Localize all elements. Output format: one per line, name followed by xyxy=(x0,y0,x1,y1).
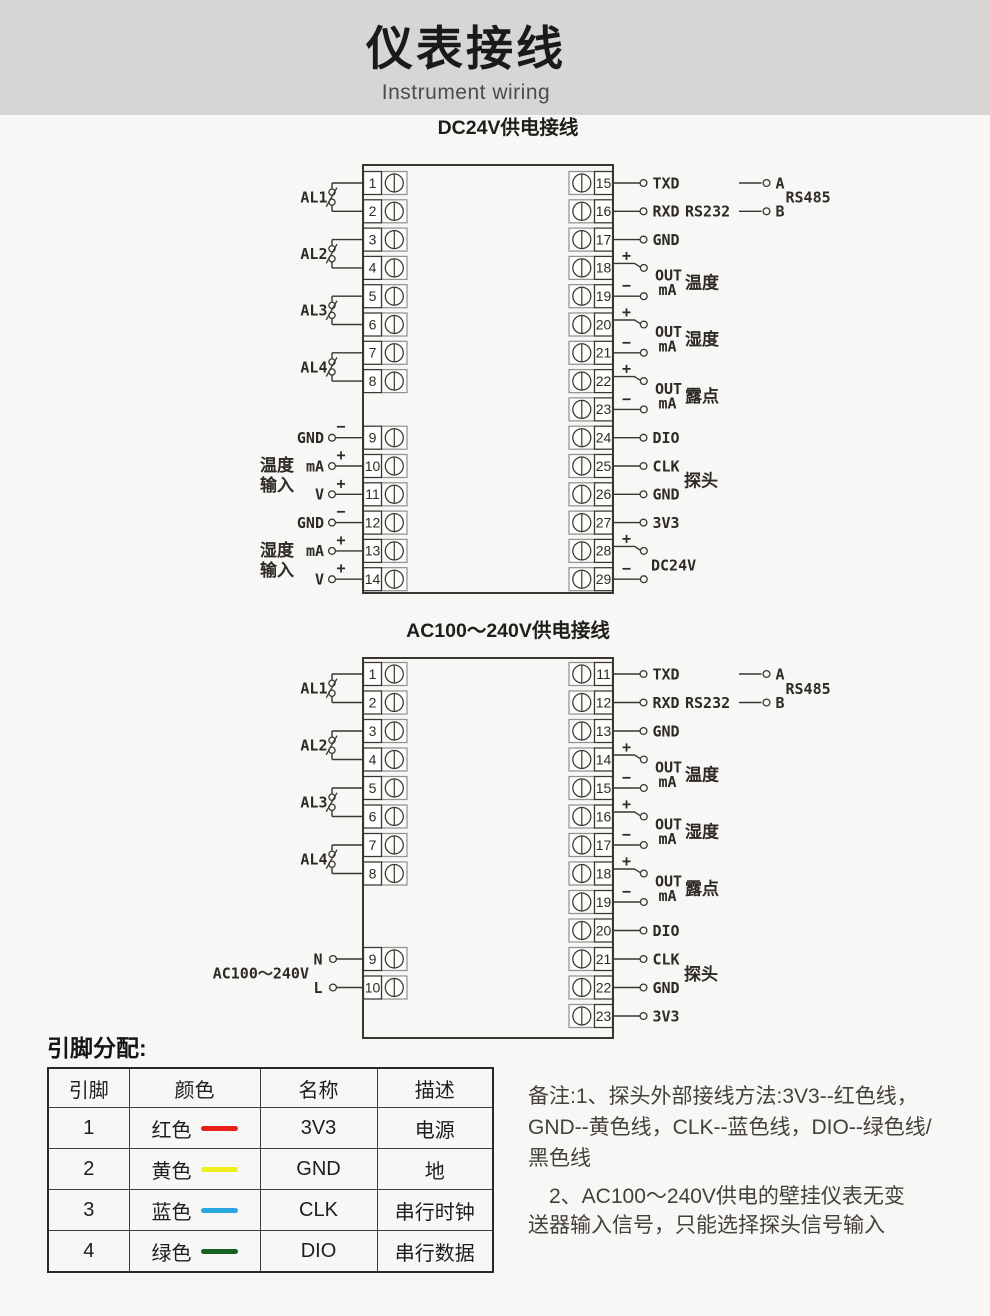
polarity-sign: + xyxy=(336,474,345,492)
terminal-13: 13 xyxy=(364,539,408,562)
input-pin-label: GND xyxy=(297,429,324,447)
desc-cell: 地 xyxy=(377,1149,493,1190)
terminal-number: 20 xyxy=(596,316,612,332)
terminal-8: 8 xyxy=(364,862,408,885)
terminal-number: 17 xyxy=(596,837,612,853)
terminal-number: 9 xyxy=(369,430,377,446)
terminal-number: 22 xyxy=(596,373,612,389)
pin-cell: 1 xyxy=(48,1108,129,1149)
out-label: OUT xyxy=(655,267,682,285)
note-1: 备注:1、探头外部接线方法:3V3--红色线， GND--黄色线，CLK--蓝色… xyxy=(528,1081,990,1174)
terminal-15: 15 xyxy=(569,172,613,195)
polarity-sign: − xyxy=(622,769,631,787)
input-pin-label: V xyxy=(315,571,324,589)
pin-label: 3V3 xyxy=(653,1007,680,1025)
diagram-ac100-240v: AC100～240V供电接线11TXD12RXD13GND14+15−16+17… xyxy=(213,619,831,1038)
polarity-sign: + xyxy=(622,360,631,378)
terminal-number: 9 xyxy=(369,951,377,967)
rs485-b-label: B xyxy=(776,694,785,712)
terminal-9: 9 xyxy=(364,948,408,971)
terminal-number: 8 xyxy=(369,865,377,881)
terminal-number: 18 xyxy=(596,865,612,881)
pin-label: GND xyxy=(653,231,680,249)
terminal-14: 14 xyxy=(569,748,613,771)
col-header-name: 名称 xyxy=(260,1068,377,1108)
polarity-sign: + xyxy=(622,246,631,264)
terminal-4: 4 xyxy=(364,256,408,279)
terminal-20: 20 xyxy=(569,919,613,942)
color-swatch xyxy=(201,1208,238,1213)
terminal-12: 12 xyxy=(364,511,408,534)
terminal-6: 6 xyxy=(364,313,408,336)
color-name: 黄色 xyxy=(152,1155,192,1184)
rs485-label: RS485 xyxy=(786,680,831,698)
terminal-15: 15 xyxy=(569,777,613,800)
terminal-7: 7 xyxy=(364,341,408,364)
desc-cell: 串行时钟 xyxy=(377,1190,493,1231)
color-cell: 红色 xyxy=(129,1108,260,1149)
page: 仪表接线 Instrument wiring DC24V供电接线15TXD16R… xyxy=(0,0,990,1316)
input-group-label: 输入 xyxy=(260,560,294,580)
polarity-sign: − xyxy=(622,333,631,351)
terminal-11: 11 xyxy=(364,483,408,506)
terminal-19: 19 xyxy=(569,891,613,914)
terminal-number: 5 xyxy=(369,780,377,796)
terminal-16: 16 xyxy=(569,200,613,223)
input-pin-label: mA xyxy=(306,542,324,560)
terminal-number: 13 xyxy=(365,543,381,559)
terminal-number: 15 xyxy=(596,780,612,796)
alarm-switch-AL4 xyxy=(326,353,363,381)
alarm-label: AL1 xyxy=(300,680,327,698)
color-name: 绿色 xyxy=(152,1237,192,1266)
table-row: 1 红色 3V3 电源 xyxy=(48,1108,493,1149)
terminal-4: 4 xyxy=(364,748,408,771)
diagram-title: AC100～240V供电接线 xyxy=(406,619,610,642)
terminal-12: 12 xyxy=(569,691,613,714)
terminal-21: 21 xyxy=(569,341,613,364)
terminal-1: 1 xyxy=(364,172,408,195)
out-label: OUT xyxy=(655,380,682,398)
terminal-2: 2 xyxy=(364,200,408,223)
output-category-label: 湿度 xyxy=(685,329,720,349)
note-line: 备注:1、探头外部接线方法:3V3--红色线， xyxy=(528,1081,990,1112)
terminal-number: 16 xyxy=(596,203,612,219)
rs485-label: RS485 xyxy=(786,189,831,207)
alarm-switch-AL1 xyxy=(326,183,363,211)
terminal-number: 18 xyxy=(596,260,612,276)
terminal-number: 11 xyxy=(596,666,611,682)
unit-label: mA xyxy=(659,830,677,848)
page-title: 仪表接线 xyxy=(0,10,932,79)
input-group-label: 输入 xyxy=(260,475,294,495)
terminal-number: 26 xyxy=(596,486,612,502)
terminal-number: 10 xyxy=(365,458,381,474)
terminal-number: 2 xyxy=(369,694,377,710)
notes-block: 备注:1、探头外部接线方法:3V3--红色线， GND--黄色线，CLK--蓝色… xyxy=(528,1081,990,1240)
alarm-switch-AL1 xyxy=(326,674,363,703)
terminal-number: 28 xyxy=(596,543,612,559)
terminal-number: 21 xyxy=(596,345,612,361)
terminal-number: 22 xyxy=(596,979,612,995)
desc-cell: 串行数据 xyxy=(377,1231,493,1273)
terminal-number: 4 xyxy=(369,260,377,276)
col-header-color: 颜色 xyxy=(129,1068,260,1108)
output-category-label: 露点 xyxy=(685,386,719,406)
desc-cell: 电源 xyxy=(377,1108,493,1149)
pin-label: RXD xyxy=(653,203,680,221)
probe-label: 探头 xyxy=(684,471,718,491)
input-group-label: 温度 xyxy=(260,455,295,475)
note-line: 黑色线 xyxy=(528,1143,990,1174)
rs232-label: RS232 xyxy=(685,203,730,221)
terminal-21: 21 xyxy=(569,948,613,971)
terminal-22: 22 xyxy=(569,370,613,393)
terminal-22: 22 xyxy=(569,976,613,999)
input-pin-label: GND xyxy=(297,514,324,532)
col-header-pin: 引脚 xyxy=(48,1068,129,1108)
pin-label: RXD xyxy=(653,694,680,712)
out-label: OUT xyxy=(655,872,682,890)
name-cell: CLK xyxy=(260,1190,377,1231)
power-pair-label: DC24V xyxy=(651,556,696,574)
terminal-26: 26 xyxy=(569,483,613,506)
terminal-number: 29 xyxy=(596,571,612,587)
pin-label: GND xyxy=(653,979,680,997)
rs485-a-label: A xyxy=(776,665,785,683)
terminal-13: 13 xyxy=(569,720,613,743)
input-pin-label: V xyxy=(315,486,324,504)
terminal-number: 19 xyxy=(596,894,612,910)
terminal-5: 5 xyxy=(364,285,408,308)
terminal-number: 21 xyxy=(596,951,612,967)
output-category-label: 温度 xyxy=(685,764,720,784)
power-pin-label: L xyxy=(313,979,322,997)
terminal-1: 1 xyxy=(364,663,408,686)
color-swatch xyxy=(201,1126,238,1131)
table-row: 3 蓝色 CLK 串行时钟 xyxy=(48,1190,493,1231)
terminal-number: 11 xyxy=(365,486,380,502)
pin-table-title: 引脚分配: xyxy=(47,1029,147,1063)
terminal-9: 9 xyxy=(364,426,408,449)
alarm-switch-AL2 xyxy=(326,240,363,268)
terminal-27: 27 xyxy=(569,511,613,534)
diagram-dc24v: DC24V供电接线15TXD16RXD17GND18+19−20+21−22+2… xyxy=(260,116,831,593)
input-group-label: 湿度 xyxy=(260,540,295,560)
pin-label: DIO xyxy=(653,922,680,940)
polarity-sign: + xyxy=(336,531,345,549)
pin-label: DIO xyxy=(653,429,680,447)
pin-label: GND xyxy=(653,486,680,504)
color-cell: 黄色 xyxy=(129,1149,260,1190)
polarity-sign: − xyxy=(622,883,631,901)
terminal-number: 2 xyxy=(369,203,377,219)
device-box xyxy=(363,165,613,593)
terminal-number: 20 xyxy=(596,922,612,938)
polarity-sign: − xyxy=(622,390,631,408)
terminal-number: 7 xyxy=(369,345,377,361)
alarm-label: AL3 xyxy=(300,302,327,320)
alarm-label: AL1 xyxy=(300,188,327,206)
unit-label: mA xyxy=(659,887,677,905)
terminal-19: 19 xyxy=(569,285,613,308)
terminal-number: 16 xyxy=(596,808,612,824)
terminal-number: 27 xyxy=(596,514,612,530)
pin-label: TXD xyxy=(653,665,680,683)
polarity-sign: − xyxy=(336,418,345,436)
terminal-18: 18 xyxy=(569,862,613,885)
table-row: 2 黄色 GND 地 xyxy=(48,1149,493,1190)
output-category-label: 露点 xyxy=(685,878,719,898)
terminal-number: 3 xyxy=(369,231,377,247)
out-label: OUT xyxy=(655,323,682,341)
polarity-sign: + xyxy=(622,303,631,321)
terminal-number: 7 xyxy=(369,837,377,853)
terminal-number: 4 xyxy=(369,751,377,767)
alarm-switch-AL2 xyxy=(326,731,363,760)
terminal-number: 12 xyxy=(365,514,381,530)
terminal-28: 28 xyxy=(569,539,613,562)
alarm-label: AL4 xyxy=(300,358,327,376)
alarm-label: AL4 xyxy=(300,851,327,869)
terminal-number: 19 xyxy=(596,288,612,304)
terminal-11: 11 xyxy=(569,663,613,686)
col-header-desc: 描述 xyxy=(377,1068,493,1108)
terminal-17: 17 xyxy=(569,228,613,251)
terminal-number: 6 xyxy=(369,808,377,824)
alarm-label: AL2 xyxy=(300,245,327,263)
color-name: 红色 xyxy=(152,1114,192,1143)
terminal-number: 1 xyxy=(369,666,377,682)
terminal-number: 6 xyxy=(369,316,377,332)
terminal-number: 25 xyxy=(596,458,612,474)
terminal-number: 12 xyxy=(596,694,612,710)
polarity-sign: + xyxy=(336,446,345,464)
terminal-number: 10 xyxy=(365,979,381,995)
polarity-sign: + xyxy=(336,559,345,577)
note-line: 送器输入信号，只能选择探头信号输入 xyxy=(528,1211,990,1240)
out-label: OUT xyxy=(655,758,682,776)
polarity-sign: + xyxy=(622,529,631,547)
alarm-label: AL2 xyxy=(300,737,327,755)
terminal-10: 10 xyxy=(364,976,408,999)
diagram-title: DC24V供电接线 xyxy=(438,116,579,139)
terminal-25: 25 xyxy=(569,455,613,478)
polarity-sign: − xyxy=(622,277,631,295)
rs485-a-label: A xyxy=(776,174,785,192)
terminal-2: 2 xyxy=(364,691,408,714)
pin-cell: 3 xyxy=(48,1190,129,1231)
alarm-switch-AL3 xyxy=(326,788,363,817)
pin-label: 3V3 xyxy=(653,514,680,532)
polarity-sign: + xyxy=(622,795,631,813)
terminal-number: 14 xyxy=(596,751,612,767)
terminal-number: 23 xyxy=(596,401,612,417)
terminal-10: 10 xyxy=(364,455,408,478)
color-cell: 绿色 xyxy=(129,1231,260,1273)
color-swatch xyxy=(201,1249,238,1254)
alarm-label: AL3 xyxy=(300,794,327,812)
pin-label: TXD xyxy=(653,174,680,192)
ac-power-label: AC100～240V xyxy=(213,965,309,983)
table-header-row: 引脚 颜色 名称 描述 xyxy=(48,1068,493,1108)
terminal-24: 24 xyxy=(569,426,613,449)
polarity-sign: − xyxy=(622,560,631,578)
terminal-number: 23 xyxy=(596,1008,612,1024)
terminal-number: 5 xyxy=(369,288,377,304)
terminal-18: 18 xyxy=(569,256,613,279)
terminal-number: 15 xyxy=(596,175,612,191)
note-2: 2、AC100～240V供电的壁挂仪表无变 送器输入信号，只能选择探头信号输入 xyxy=(528,1182,990,1240)
unit-label: mA xyxy=(659,281,677,299)
unit-label: mA xyxy=(659,773,677,791)
terminal-number: 8 xyxy=(369,373,377,389)
terminal-23: 23 xyxy=(569,1005,613,1028)
name-cell: GND xyxy=(260,1149,377,1190)
name-cell: 3V3 xyxy=(260,1108,377,1149)
note-line: GND--黄色线，CLK--蓝色线，DIO--绿色线/ xyxy=(528,1112,990,1143)
terminal-20: 20 xyxy=(569,313,613,336)
terminal-number: 24 xyxy=(596,430,612,446)
terminal-3: 3 xyxy=(364,228,408,251)
terminal-14: 14 xyxy=(364,568,408,591)
unit-label: mA xyxy=(659,394,677,412)
terminal-16: 16 xyxy=(569,805,613,828)
power-pin-label: N xyxy=(313,950,322,968)
polarity-sign: − xyxy=(336,503,345,521)
alarm-switch-AL4 xyxy=(326,845,363,874)
pin-label: GND xyxy=(653,722,680,740)
terminal-number: 14 xyxy=(365,571,381,587)
pin-cell: 4 xyxy=(48,1231,129,1273)
table-row: 4 绿色 DIO 串行数据 xyxy=(48,1231,493,1273)
terminal-3: 3 xyxy=(364,720,408,743)
polarity-sign: + xyxy=(622,852,631,870)
device-box xyxy=(363,658,613,1038)
out-label: OUT xyxy=(655,815,682,833)
terminal-number: 13 xyxy=(596,723,612,739)
rs485-b-label: B xyxy=(776,203,785,221)
polarity-sign: + xyxy=(622,738,631,756)
terminal-number: 3 xyxy=(369,723,377,739)
terminal-17: 17 xyxy=(569,834,613,857)
pin-label: CLK xyxy=(653,950,680,968)
page-subtitle: Instrument wiring xyxy=(0,81,932,105)
note-line: 2、AC100～240V供电的壁挂仪表无变 xyxy=(528,1182,990,1211)
terminal-29: 29 xyxy=(569,568,613,591)
terminal-8: 8 xyxy=(364,370,408,393)
terminal-5: 5 xyxy=(364,777,408,800)
rs232-label: RS232 xyxy=(685,694,730,712)
terminal-number: 17 xyxy=(596,231,612,247)
terminal-number: 1 xyxy=(369,175,377,191)
color-swatch xyxy=(201,1167,238,1172)
color-cell: 蓝色 xyxy=(129,1190,260,1231)
terminal-23: 23 xyxy=(569,398,613,421)
probe-label: 探头 xyxy=(684,964,718,984)
terminal-6: 6 xyxy=(364,805,408,828)
name-cell: DIO xyxy=(260,1231,377,1273)
polarity-sign: − xyxy=(622,826,631,844)
color-name: 蓝色 xyxy=(152,1196,192,1225)
output-category-label: 温度 xyxy=(685,273,720,293)
pin-cell: 2 xyxy=(48,1149,129,1190)
input-pin-label: mA xyxy=(306,457,324,475)
unit-label: mA xyxy=(659,338,677,356)
pin-label: CLK xyxy=(653,457,680,475)
pin-allocation-table: 引脚 颜色 名称 描述 1 红色 3V3 电源 2 黄色 GND 地 3 蓝色 xyxy=(47,1067,494,1273)
alarm-switch-AL3 xyxy=(326,296,363,324)
output-category-label: 湿度 xyxy=(685,821,720,841)
terminal-7: 7 xyxy=(364,834,408,857)
header-band: 仪表接线 Instrument wiring xyxy=(0,0,990,115)
